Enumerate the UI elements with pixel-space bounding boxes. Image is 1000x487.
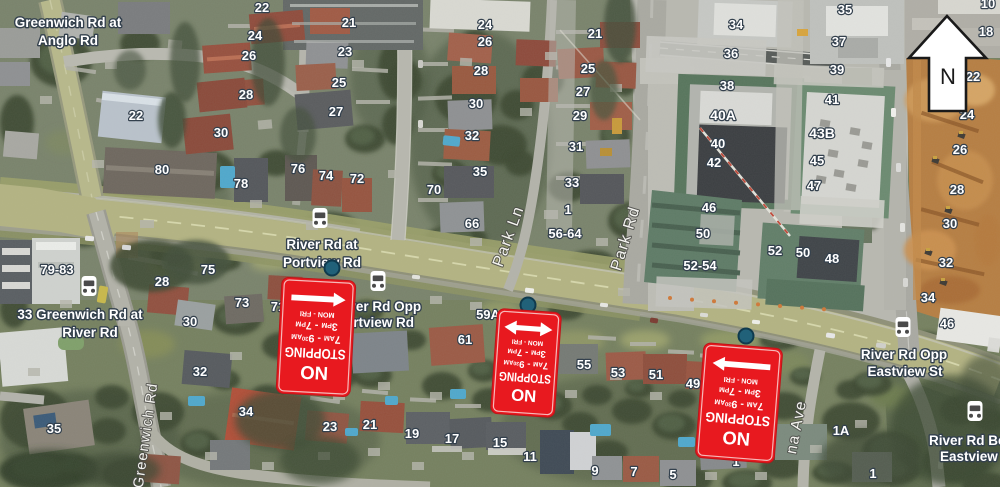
svg-text:79-83: 79-83 xyxy=(40,262,73,277)
svg-text:35: 35 xyxy=(838,2,852,17)
svg-text:27: 27 xyxy=(576,84,590,99)
svg-text:Eastview St: Eastview St xyxy=(867,364,943,379)
svg-text:9: 9 xyxy=(591,463,598,478)
svg-text:72: 72 xyxy=(350,171,364,186)
svg-text:18: 18 xyxy=(979,24,993,39)
svg-text:52: 52 xyxy=(768,243,782,258)
svg-text:78: 78 xyxy=(234,176,248,191)
svg-text:42: 42 xyxy=(707,155,721,170)
svg-text:Anglo Rd: Anglo Rd xyxy=(38,33,98,48)
svg-text:River Rd: River Rd xyxy=(62,325,118,340)
svg-text:39: 39 xyxy=(830,62,844,77)
svg-text:11: 11 xyxy=(523,449,537,464)
svg-text:15: 15 xyxy=(493,435,507,450)
svg-text:50: 50 xyxy=(796,245,810,260)
svg-text:38: 38 xyxy=(720,78,734,93)
svg-text:34: 34 xyxy=(921,290,936,305)
svg-text:70: 70 xyxy=(427,182,441,197)
svg-text:1: 1 xyxy=(564,202,571,217)
svg-text:MON - FRI: MON - FRI xyxy=(300,309,335,320)
svg-text:28: 28 xyxy=(474,63,488,78)
svg-text:55: 55 xyxy=(577,357,591,372)
svg-text:26: 26 xyxy=(953,142,967,157)
svg-text:Portview Rd: Portview Rd xyxy=(283,255,361,270)
svg-text:35: 35 xyxy=(47,421,61,436)
svg-text:45: 45 xyxy=(810,153,824,168)
svg-text:49: 49 xyxy=(686,376,700,391)
svg-text:61: 61 xyxy=(458,332,472,347)
svg-text:23: 23 xyxy=(338,44,352,59)
svg-text:NO: NO xyxy=(511,385,537,406)
svg-text:34: 34 xyxy=(729,17,744,32)
svg-text:30: 30 xyxy=(469,96,483,111)
svg-text:10: 10 xyxy=(981,0,995,11)
svg-text:76: 76 xyxy=(291,161,305,176)
svg-text:48: 48 xyxy=(825,251,839,266)
svg-text:40: 40 xyxy=(711,136,725,151)
svg-text:32: 32 xyxy=(939,255,953,270)
svg-text:47: 47 xyxy=(807,178,821,193)
svg-text:STOPPING: STOPPING xyxy=(284,344,346,363)
svg-text:NO: NO xyxy=(300,362,329,384)
svg-text:7: 7 xyxy=(630,464,637,479)
svg-text:73: 73 xyxy=(235,295,249,310)
svg-text:17: 17 xyxy=(445,431,459,446)
svg-text:30: 30 xyxy=(183,314,197,329)
svg-text:50: 50 xyxy=(696,226,710,241)
svg-text:31: 31 xyxy=(569,139,583,154)
svg-text:21: 21 xyxy=(588,26,602,41)
svg-text:35: 35 xyxy=(473,164,487,179)
svg-text:32: 32 xyxy=(193,364,207,379)
svg-text:1A: 1A xyxy=(833,423,850,438)
svg-text:53: 53 xyxy=(611,365,625,380)
svg-text:34: 34 xyxy=(239,404,254,419)
svg-text:30: 30 xyxy=(943,216,957,231)
svg-text:26: 26 xyxy=(242,48,256,63)
svg-text:43B: 43B xyxy=(809,125,835,141)
svg-text:25: 25 xyxy=(332,75,346,90)
svg-text:33 Greenwich Rd at: 33 Greenwich Rd at xyxy=(17,307,143,322)
svg-text:27: 27 xyxy=(329,104,343,119)
svg-text:19: 19 xyxy=(405,426,419,441)
svg-text:N: N xyxy=(940,64,956,89)
svg-text:46: 46 xyxy=(702,200,716,215)
svg-text:75: 75 xyxy=(201,262,215,277)
svg-text:21: 21 xyxy=(363,417,377,432)
svg-text:46: 46 xyxy=(940,316,954,331)
svg-text:22: 22 xyxy=(129,108,143,123)
svg-text:23: 23 xyxy=(323,419,337,434)
svg-text:28: 28 xyxy=(155,274,169,289)
svg-text:80: 80 xyxy=(155,162,169,177)
svg-text:NO: NO xyxy=(722,427,751,450)
svg-text:22: 22 xyxy=(966,69,980,84)
svg-text:26: 26 xyxy=(478,34,492,49)
svg-text:5: 5 xyxy=(669,467,676,482)
svg-text:24: 24 xyxy=(248,28,263,43)
svg-text:Greenwich Rd at: Greenwich Rd at xyxy=(15,15,122,30)
svg-text:51: 51 xyxy=(649,367,663,382)
svg-text:28: 28 xyxy=(239,87,253,102)
svg-text:22: 22 xyxy=(255,0,269,15)
svg-text:41: 41 xyxy=(825,92,839,107)
svg-text:24: 24 xyxy=(478,17,493,32)
svg-text:Eastview: Eastview xyxy=(940,449,998,464)
svg-text:River Rd Opp: River Rd Opp xyxy=(861,347,947,362)
svg-text:32: 32 xyxy=(465,128,479,143)
svg-text:52-54: 52-54 xyxy=(683,258,717,273)
svg-text:21: 21 xyxy=(342,15,356,30)
svg-text:66: 66 xyxy=(465,216,479,231)
svg-text:30: 30 xyxy=(214,125,228,140)
svg-text:25: 25 xyxy=(581,61,595,76)
svg-text:74: 74 xyxy=(319,168,334,183)
svg-text:River Rd Be: River Rd Be xyxy=(929,433,1000,448)
svg-text:33: 33 xyxy=(565,175,579,190)
svg-text:36: 36 xyxy=(724,46,738,61)
svg-text:37: 37 xyxy=(832,34,846,49)
svg-text:28: 28 xyxy=(950,182,964,197)
svg-text:1: 1 xyxy=(869,466,876,481)
svg-text:River Rd at: River Rd at xyxy=(286,237,358,252)
svg-text:40A: 40A xyxy=(710,107,736,123)
svg-text:29: 29 xyxy=(573,108,587,123)
svg-text:56-64: 56-64 xyxy=(548,226,582,241)
